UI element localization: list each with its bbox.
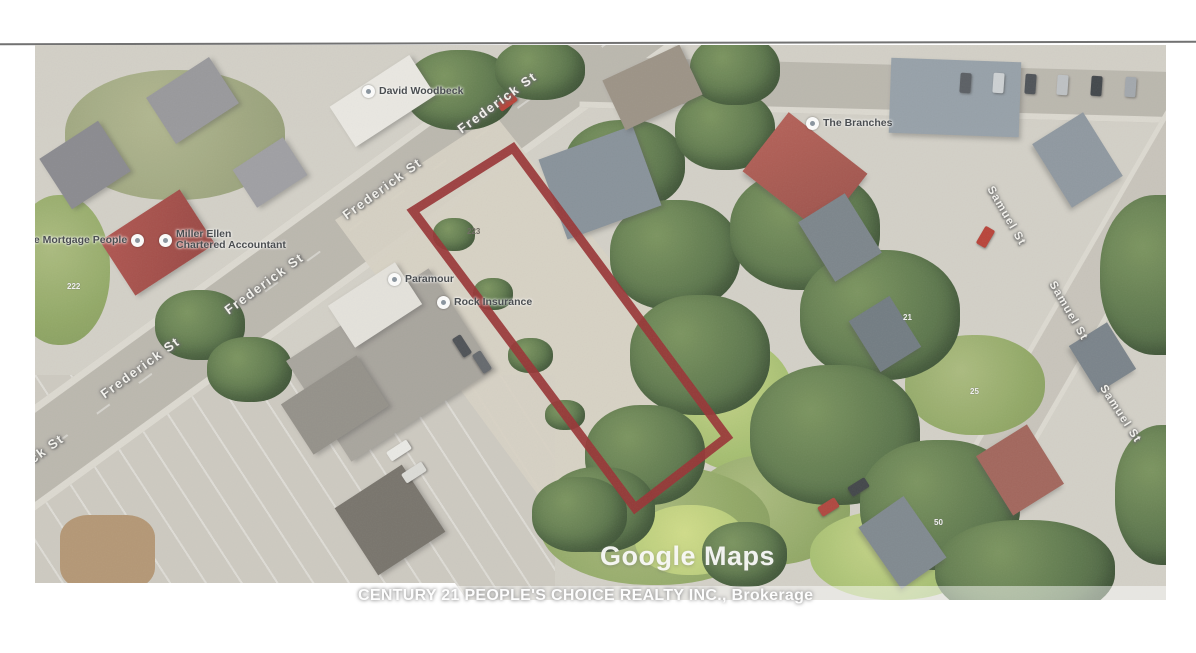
poi-label: Miller EllenChartered Accountant [176,229,286,251]
house-number-25: 25 [970,387,979,396]
poi-david-woodbeck: David Woodbeck [362,85,463,98]
place-pin-icon [159,234,172,247]
google-maps-watermark: Google Maps [600,541,775,572]
poi-mortgage-people: The Mortgage People [35,234,144,247]
place-pin-icon [437,296,450,309]
house-number-21: 21 [903,313,912,322]
place-pin-icon [131,234,144,247]
place-pin-icon [388,273,401,286]
satellite-map: Frederick St Frederick St Frederick St F… [35,45,1166,600]
poi-label: Rock Insurance [454,297,532,308]
poi-label: David Woodbeck [379,86,463,97]
place-pin-icon [806,117,819,130]
house-number-222: 222 [67,282,80,291]
poi-label: The Mortgage People [35,235,127,246]
brokerage-watermark-text: CENTURY 21 PEOPLE'S CHOICE REALTY INC., … [358,586,813,605]
house-number-50: 50 [934,518,943,527]
scan-edge-line [0,41,1196,46]
poi-paramour: Paramour [388,273,454,286]
poi-the-branches: The Branches [806,117,892,130]
place-pin-icon [362,85,375,98]
subject-property-outline [35,45,1166,600]
poi-rock-insurance: Rock Insurance [437,296,532,309]
brokerage-watermark-band: CENTURY 21 PEOPLE'S CHOICE REALTY INC., … [38,586,1171,605]
poi-label: Paramour [405,274,454,285]
scanned-aerial-listing-page: { "page": { "watermark": "Google Maps", … [0,0,1196,653]
poi-label: The Branches [823,118,892,129]
house-number-223: 223 [467,227,480,236]
poi-miller-ellen: Miller EllenChartered Accountant [159,229,286,251]
